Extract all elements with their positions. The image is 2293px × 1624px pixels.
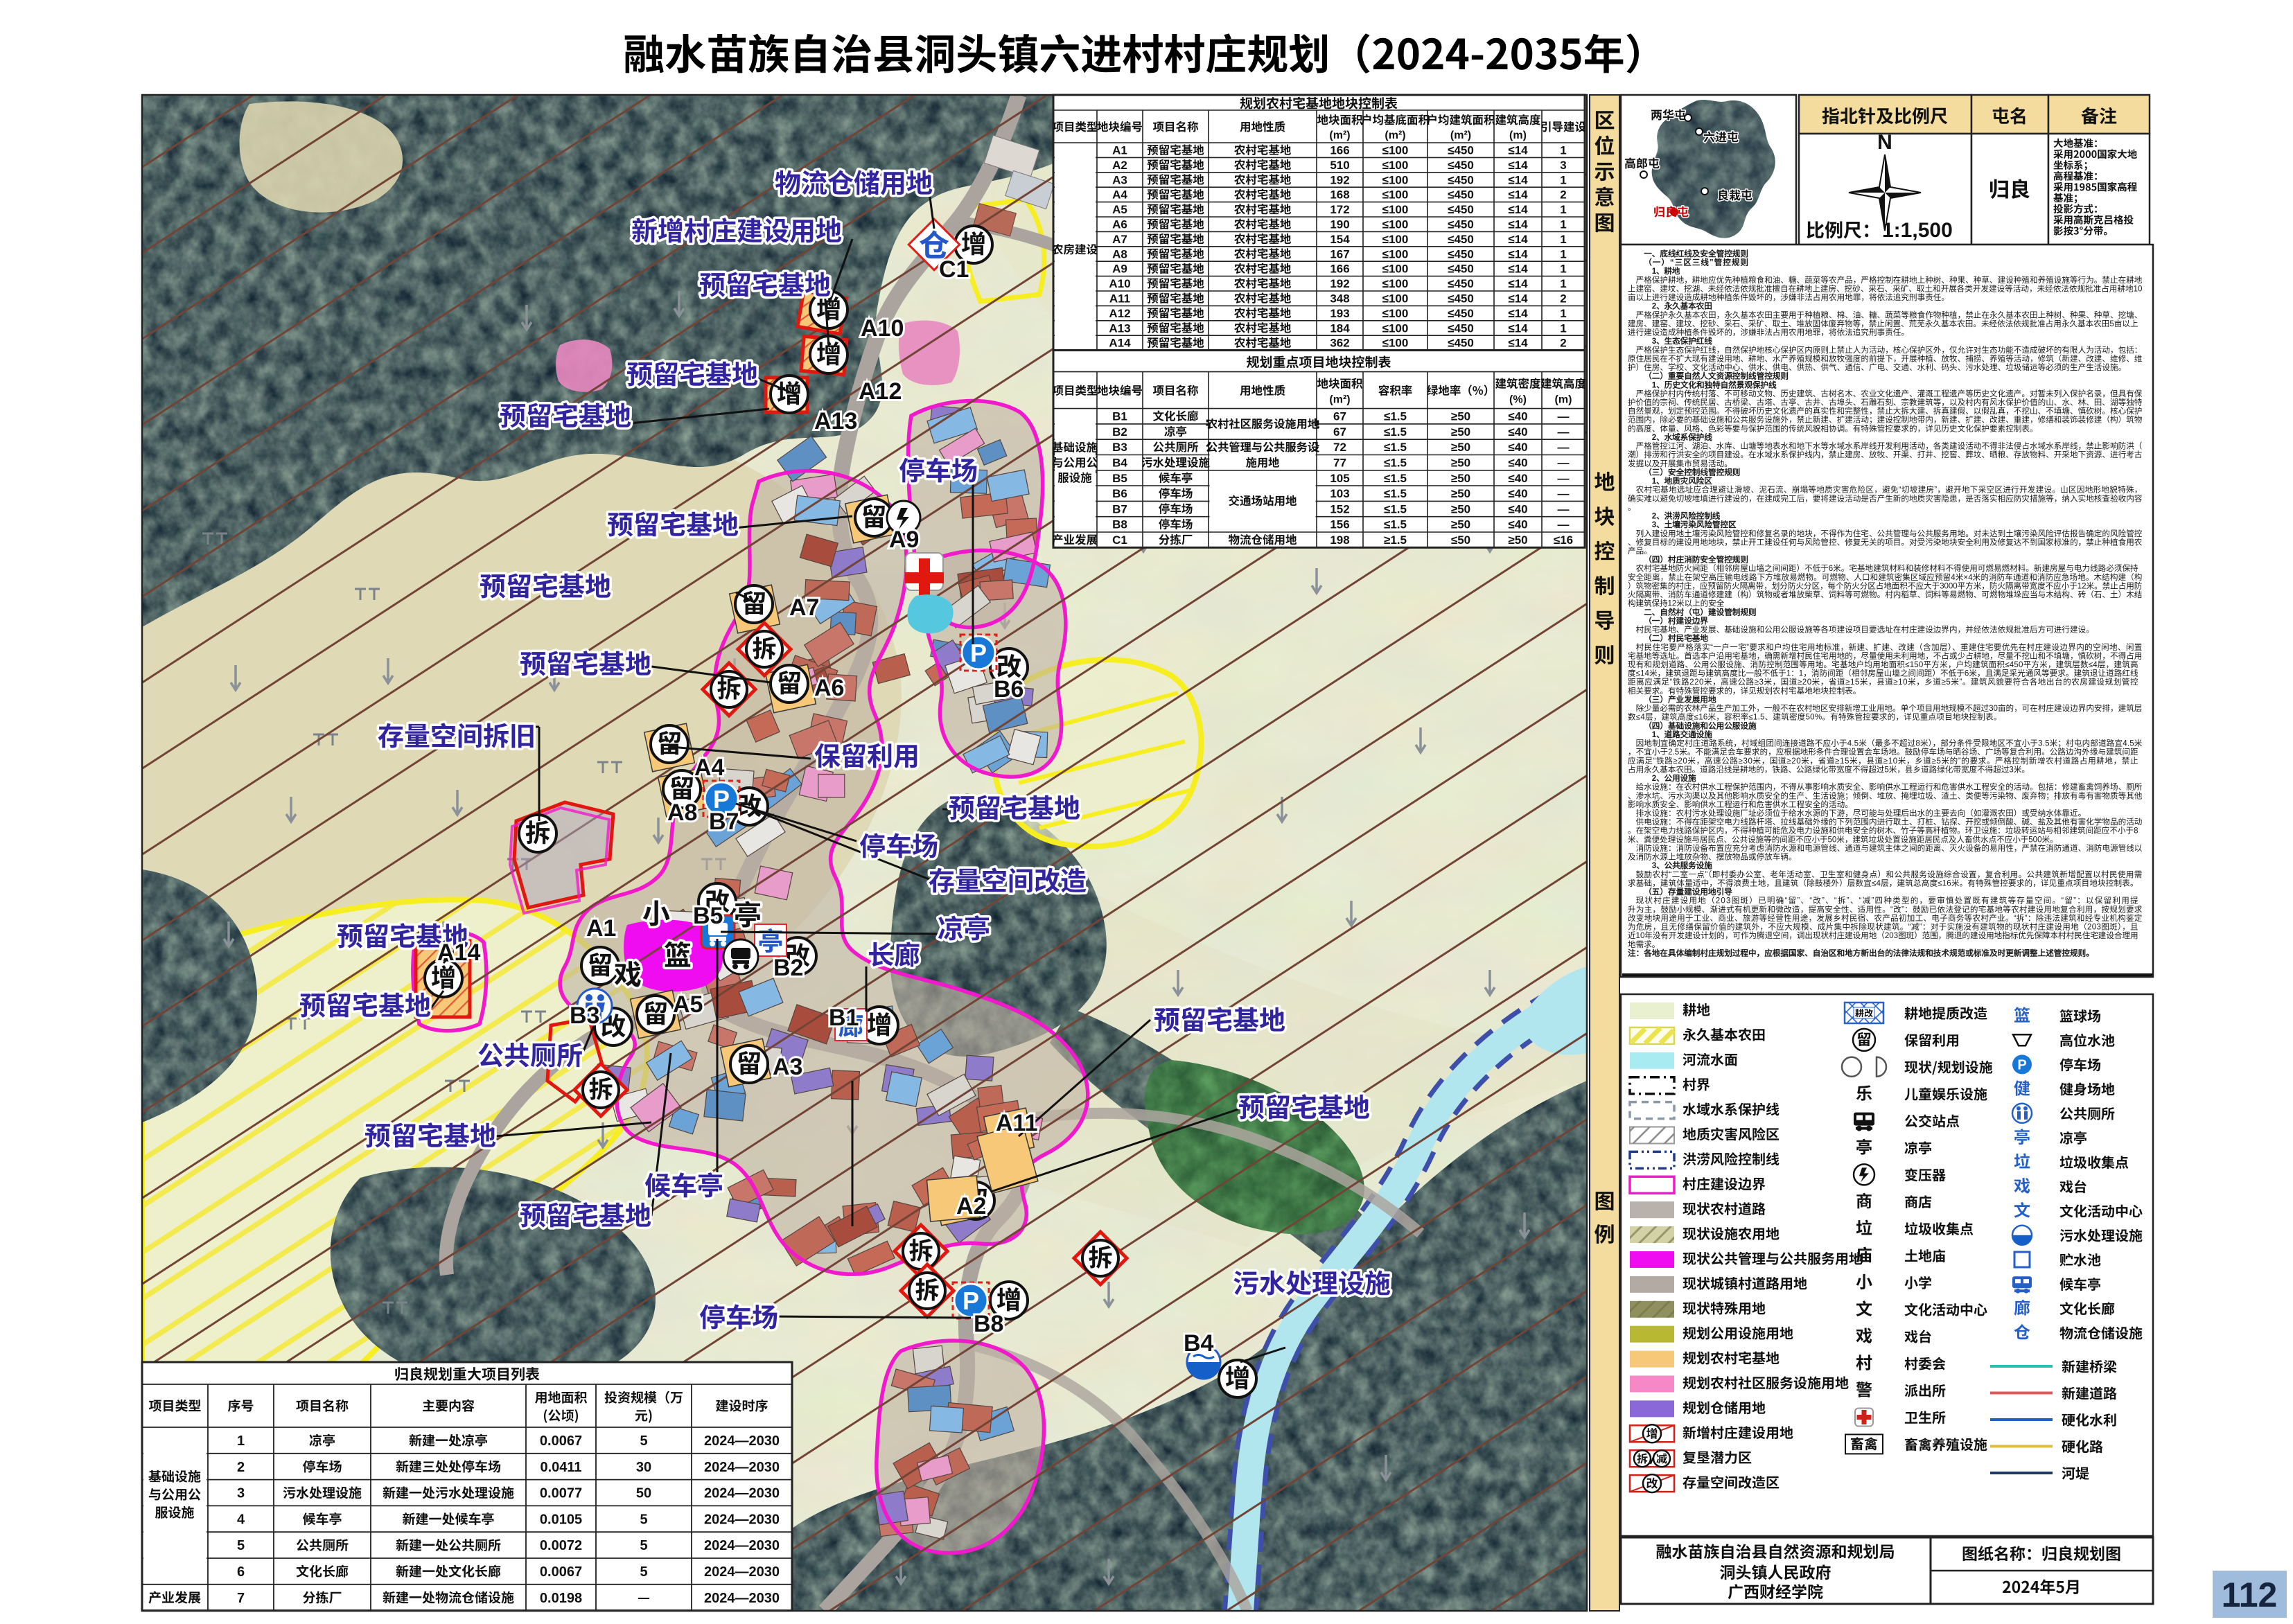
- svg-text:67: 67: [1333, 425, 1346, 439]
- svg-text:严格保护生态保护红线，自然保护地核心保护区内原则上禁止人为活: 严格保护生态保护红线，自然保护地核心保护区内原则上禁止人为活动，核心保护区外，仅…: [1636, 345, 2143, 355]
- svg-text:—: —: [1558, 441, 1570, 454]
- svg-text:现有和规划道路、公用公服设施、消防控制范围等用地。宅基地户均: 现有和规划道路、公用公服设施、消防控制范围等用地。宅基地户均用地面积≤150平方…: [1628, 660, 2138, 669]
- svg-text:≤14: ≤14: [1508, 263, 1528, 276]
- svg-text:≥50: ≥50: [1451, 487, 1470, 500]
- svg-text:A2: A2: [1112, 159, 1127, 172]
- svg-text:米、粪便处理设施与居民点、公共设施等的间距不应小于50米，建: 米、粪便处理设施与居民点、公共设施等的间距不应小于50米，建筑垃圾处置设施距居民…: [1628, 834, 2058, 844]
- svg-text:≤450: ≤450: [1448, 337, 1474, 350]
- svg-text:(m²): (m²): [1450, 130, 1471, 141]
- svg-text:A8: A8: [667, 800, 697, 826]
- svg-text:A11: A11: [1109, 292, 1130, 306]
- svg-text:A6: A6: [814, 675, 844, 701]
- svg-text:112: 112: [2222, 1576, 2278, 1614]
- svg-text:≤100: ≤100: [1382, 277, 1409, 290]
- svg-text:构建筑保持12米以上的安全: 构建筑保持12米以上的安全: [1628, 599, 1725, 608]
- svg-text:≤1.5: ≤1.5: [1384, 441, 1407, 454]
- svg-text:0.0198: 0.0198: [540, 1591, 582, 1606]
- svg-text:5: 5: [640, 1538, 647, 1553]
- svg-text:≤100: ≤100: [1382, 218, 1409, 231]
- svg-text:村民住宅要严格落实“一户一宅”要求和户均住宅用地标准，新建、: 村民住宅要严格落实“一户一宅”要求和户均住宅用地标准，新建、扩建、改建（含加层）…: [1636, 642, 2143, 652]
- svg-text:1、耕地: 1、耕地: [1652, 266, 1680, 276]
- svg-text:2024—2030: 2024—2030: [704, 1564, 780, 1580]
- svg-text:求基础，建筑体量适中，不得浪费土地，且建筑（除鼓楼外）层数宜: 求基础，建筑体量适中，不得浪费土地，且建筑（除鼓楼外）层数宜≤4层，建筑总高度≤…: [1628, 878, 2138, 888]
- svg-text:(%): (%): [1509, 394, 1527, 406]
- svg-text:0.0072: 0.0072: [540, 1538, 582, 1553]
- svg-text:B3: B3: [1112, 441, 1127, 454]
- svg-text:4: 4: [237, 1512, 245, 1527]
- svg-text:198: 198: [1330, 533, 1349, 547]
- svg-text:≤100: ≤100: [1382, 321, 1409, 335]
- svg-text:1: 1: [1560, 144, 1566, 157]
- svg-text:一、底线红线及安全管控规则: 一、底线红线及安全管控规则: [1644, 249, 1748, 258]
- svg-text:2024—2030: 2024—2030: [704, 1486, 780, 1501]
- svg-text:30: 30: [636, 1460, 651, 1475]
- svg-text:影响水质安全、影响供水工程运行和危害供水工程安全的活动。: 影响水质安全、影响供水工程运行和危害供水工程安全的活动。: [1628, 800, 1853, 809]
- svg-text:≤450: ≤450: [1448, 203, 1474, 216]
- svg-text:除少量必需的农林产品生产加工外，一般不在农村地区安排新增工业: 除少量必需的农林产品生产加工外，一般不在农村地区安排新增工业用地。单个项目用地规…: [1636, 703, 2143, 713]
- svg-text:消防设施：消防设备布置应充分考虑消防水源和电源管线、通道与建: 消防设施：消防设备布置应充分考虑消防水源和电源管线、通道与建筑主体之间的距离、灭…: [1636, 843, 2143, 853]
- svg-text:≤100: ≤100: [1382, 203, 1409, 216]
- svg-text:发掘以及开展集市贸易活动。: 发掘以及开展集市贸易活动。: [1628, 459, 1732, 468]
- svg-text:数≤4层，建筑高度≤16米，容积率≤1.5、建筑密度50%。: 数≤4层，建筑高度≤16米，容积率≤1.5、建筑密度50%。有特殊管控要求的，详…: [1628, 712, 2001, 722]
- svg-text:3: 3: [1560, 159, 1566, 172]
- svg-text:B5: B5: [693, 903, 723, 929]
- svg-text:。: 。: [1628, 503, 1636, 512]
- svg-text:≤450: ≤450: [1448, 144, 1474, 157]
- svg-text:B5: B5: [1112, 472, 1127, 485]
- svg-text:5: 5: [640, 1433, 647, 1449]
- svg-text:B4: B4: [1112, 457, 1127, 470]
- svg-text:地需求。: 地需求。: [1628, 940, 1660, 949]
- svg-text:A3: A3: [773, 1054, 802, 1080]
- svg-text:≤100: ≤100: [1382, 188, 1409, 202]
- svg-text:2024—2030: 2024—2030: [704, 1460, 780, 1475]
- svg-text:≤14: ≤14: [1508, 144, 1528, 157]
- svg-text:亩以上进行建设造成耕地种植条件毁坏的，涉嫌非法占用农用地罪，: 亩以上进行建设造成耕地种植条件毁坏的，涉嫌非法占用农用地罪，将依法追究刑事责任。: [1628, 292, 1949, 302]
- svg-text:A7: A7: [1112, 233, 1127, 246]
- svg-text:3、公共服务设施: 3、公共服务设施: [1652, 860, 1712, 870]
- svg-text:(m): (m): [1555, 394, 1572, 406]
- svg-text:72: 72: [1333, 441, 1346, 454]
- svg-text:190: 190: [1330, 218, 1349, 231]
- svg-text:≥50: ≥50: [1451, 472, 1470, 485]
- svg-text:A9: A9: [889, 527, 919, 553]
- svg-text:给水设施：在农村供水工程保护范围内，不得从事影响水质安全、影: 给水设施：在农村供水工程保护范围内，不得从事影响水质安全、影响供水工程运行和危害…: [1636, 782, 2143, 792]
- svg-text:≥50: ≥50: [1451, 518, 1470, 531]
- svg-text:2024—2030: 2024—2030: [704, 1538, 780, 1553]
- svg-text:B8: B8: [1112, 518, 1127, 531]
- svg-text:≤100: ≤100: [1382, 173, 1409, 186]
- svg-text:1、历史文化和独特自然景观保护线: 1、历史文化和独特自然景观保护线: [1652, 380, 1777, 389]
- svg-text:154: 154: [1330, 233, 1350, 246]
- svg-text:2: 2: [1560, 292, 1566, 306]
- svg-text:192: 192: [1330, 173, 1349, 186]
- svg-text:184: 184: [1330, 321, 1350, 335]
- svg-text:≤1.5: ≤1.5: [1384, 425, 1407, 439]
- svg-text:≤40: ≤40: [1508, 441, 1527, 454]
- svg-text:B7: B7: [709, 809, 739, 835]
- svg-text:1、地质灾风险区: 1、地质灾风险区: [1652, 476, 1712, 486]
- svg-text:5: 5: [237, 1538, 245, 1553]
- svg-text:≤100: ≤100: [1382, 292, 1409, 306]
- svg-text:≥50: ≥50: [1451, 441, 1470, 454]
- svg-text:A10: A10: [861, 315, 904, 342]
- svg-text:2024—2030: 2024—2030: [704, 1591, 780, 1606]
- svg-text:（一）村建设边界: （一）村建设边界: [1644, 616, 1708, 626]
- svg-text:1: 1: [1560, 218, 1566, 231]
- svg-text:A12: A12: [1109, 307, 1130, 320]
- svg-text:、修复目标的建设用地地块，禁止开工建设任何与风险管控、修复无: 、修复目标的建设用地地块，禁止开工建设任何与风险管控、修复无关的项目。对受污染地…: [1628, 537, 2143, 547]
- svg-text:B7: B7: [1112, 502, 1127, 515]
- svg-text:0.0105: 0.0105: [540, 1512, 582, 1527]
- svg-text:≤100: ≤100: [1382, 337, 1409, 350]
- svg-text:166: 166: [1330, 144, 1349, 157]
- svg-text:A14: A14: [1109, 337, 1131, 350]
- svg-text:≤450: ≤450: [1448, 277, 1474, 290]
- svg-text:—: —: [1558, 457, 1570, 470]
- svg-text:1: 1: [1560, 247, 1566, 261]
- svg-text:原住居民在不扩大现有建设用地、耕地、水产养殖规模和放牧强度的: 原住居民在不扩大现有建设用地、耕地、水产养殖规模和放牧强度的前提下，开展种植、放…: [1628, 353, 2143, 363]
- svg-text:≤14: ≤14: [1508, 188, 1528, 202]
- svg-text:A5: A5: [1112, 203, 1127, 216]
- svg-text:列入建设用地土壤污染风险管控和修复名录的地块，不得作为住宅、: 列入建设用地土壤污染风险管控和修复名录的地块，不得作为住宅、公共管理与公共服务用…: [1636, 529, 2143, 538]
- svg-text:的高度、体量、风格、色彩等要与保护范围的传统风貌相协调。有特: 的高度、体量、风格、色彩等要与保护范围的传统风貌相协调。有特殊管控要求的，详见历…: [1628, 423, 2038, 433]
- svg-text:2024—2030: 2024—2030: [704, 1433, 780, 1449]
- svg-text:≤100: ≤100: [1382, 247, 1409, 261]
- svg-text:严格管控江河、湖泊、水库、山塘等地表水和地下水等水域水系岸线: 严格管控江河、湖泊、水库、山塘等地表水和地下水等水域水系岸线开发利用活动，各类建…: [1636, 441, 2143, 451]
- svg-text:≤14: ≤14: [1508, 277, 1528, 290]
- svg-text:（四）村庄消防安全管控规则: （四）村庄消防安全管控规则: [1644, 555, 1748, 565]
- svg-text:≤16: ≤16: [1554, 533, 1573, 547]
- svg-text:≤1.5: ≤1.5: [1384, 487, 1407, 500]
- svg-text:（三）安全控制线管控规则: （三）安全控制线管控规则: [1644, 467, 1740, 477]
- svg-text:农村宅基地选址应合理避让滑坡、泥石流、崩塌等地质灾害危险区，: 农村宅基地选址应合理避让滑坡、泥石流、崩塌等地质灾害危险区，避免“切坡建房”，避…: [1636, 485, 2143, 495]
- svg-text:(m): (m): [1509, 130, 1527, 141]
- svg-text:0.0067: 0.0067: [540, 1433, 582, 1449]
- svg-text:≤1.5: ≤1.5: [1384, 457, 1407, 470]
- svg-text:1:1,500: 1:1,500: [1882, 219, 1953, 242]
- svg-text:严格保护村内传统村落、不可移动文物、历史建筑、古树名木、农业: 严格保护村内传统村落、不可移动文物、历史建筑、古树名木、农业文化遗产、灌溉工程遗…: [1636, 389, 2143, 398]
- svg-text:应满足“铁路≥20米，高速公路≥30米，国道≥20米，省道≥: 应满足“铁路≥20米，高速公路≥30米，国道≥20米，省道≥15米，县道≥10米…: [1628, 756, 2138, 766]
- svg-text:为危房，且无修缮保留价值的建筑外，不应大规模、成片集中拆除现: 为危房，且无修缮保留价值的建筑外，不应大规模、成片集中拆除现状建筑。“减”：对于…: [1628, 922, 2138, 932]
- svg-text:≤450: ≤450: [1448, 263, 1474, 276]
- svg-text:严格保护永久基本农田，永久基本农田主要用于种植粮、棉、油、糖: 严格保护永久基本农田，永久基本农田主要用于种植粮、棉、油、糖、蔬菜等粮食作物种植…: [1636, 310, 2143, 319]
- svg-text:50: 50: [636, 1486, 651, 1501]
- svg-text:A9: A9: [1112, 263, 1127, 276]
- svg-text:距离应满足“铁路220米，高速公路≥3米，国道≥20米，省道: 距离应满足“铁路220米，高速公路≥3米，国道≥20米，省道≥15米，县道≥10…: [1628, 677, 2138, 687]
- svg-text:升为主，鼓励小规模、渐进式有机更新和微改造，提高安全性、适用: 升为主，鼓励小规模、渐进式有机更新和微改造，提高安全性、适用性。“改”：鼓励已依…: [1628, 904, 2143, 914]
- svg-text:相关要求。有特殊管控要求的，详见规划农村宅基地地块控制表。: 相关要求。有特殊管控要求的，详见规划农村宅基地地块控制表。: [1628, 686, 1861, 696]
- svg-text:护价值的宗祠、传统民居、古桥梁、古塔、古亭、古井、古埠头、石: 护价值的宗祠、传统民居、古桥梁、古塔、古亭、古井、古埠头、石雕石刻、宗教建筑等，…: [1628, 398, 2143, 407]
- svg-text:≤14: ≤14: [1508, 173, 1528, 186]
- svg-text:0.0411: 0.0411: [540, 1460, 581, 1475]
- svg-text:3、生态保护红线: 3、生态保护红线: [1652, 336, 1712, 346]
- svg-text:A1: A1: [586, 915, 616, 942]
- svg-text:5: 5: [640, 1564, 647, 1580]
- svg-text:≤450: ≤450: [1448, 307, 1474, 320]
- svg-text:(m²): (m²): [1385, 130, 1405, 141]
- svg-text:现状村庄建设用地（203图斑）已明确“留”、“改”、“拆”、: 现状村庄建设用地（203图斑）已明确“留”、“改”、“拆”、“减”四种类型的，要…: [1636, 896, 2138, 906]
- svg-text:—: —: [1558, 487, 1570, 500]
- svg-text:火隔离带、消防车通道修建建（构）筑物或者堆放柴草、饲料等可燃: 火隔离带、消防车通道修建建（构）筑物或者堆放柴草、饲料等可燃物。村内稻草、饲料等…: [1628, 590, 2142, 599]
- svg-text:安全距离，禁止在架空高压输电线路下方堆放易燃物。可燃物、人口: 安全距离，禁止在架空高压输电线路下方堆放易燃物。可燃物、人口和建筑密集区域应预留…: [1628, 572, 2142, 582]
- svg-text:—: —: [1558, 410, 1570, 423]
- svg-text:≤14: ≤14: [1508, 321, 1528, 335]
- svg-text:、渗水坑、污水沟渠以及其他影响水质安全的生产、生活设施；倾倒: 、渗水坑、污水沟渠以及其他影响水质安全的生产、生活设施；倾倒、堆放、掩埋垃圾、渣…: [1628, 791, 2143, 800]
- svg-text:及消防水源上堆放杂物、摆放物品或停放车辆。: 及消防水源上堆放杂物、摆放物品或停放车辆。: [1628, 852, 1797, 862]
- svg-text:近10年没有开发建设计划的，可作为腾退空间，调出现状村庄建设: 近10年没有开发建设计划的，可作为腾退空间，调出现状村庄建设用地（203图斑）范…: [1628, 930, 2138, 940]
- svg-text:（五）存量建设用地引导: （五）存量建设用地引导: [1644, 887, 1732, 897]
- svg-text:1: 1: [1560, 321, 1566, 335]
- svg-text:鼓励农村“二室一点”（即村委办公室、老年活动室、卫生室和健身: 鼓励农村“二室一点”（即村委办公室、老年活动室、卫生室和健身点）和公共服务设施综…: [1636, 870, 2143, 879]
- svg-text:2: 2: [237, 1460, 245, 1475]
- svg-text:77: 77: [1333, 457, 1346, 470]
- svg-text:—: —: [1558, 502, 1570, 515]
- svg-text:A2: A2: [956, 1193, 986, 1219]
- svg-text:152: 152: [1330, 502, 1349, 515]
- svg-text:≤14: ≤14: [1508, 218, 1528, 231]
- svg-text:A7: A7: [789, 594, 819, 621]
- svg-text:1: 1: [1560, 203, 1566, 216]
- svg-text:A8: A8: [1112, 247, 1127, 261]
- svg-text:7: 7: [237, 1591, 245, 1606]
- svg-text:范围内，除必要的基础设施和公共服务设施外，禁止新建、扩建活动: 范围内，除必要的基础设施和公共服务设施外，禁止新建、扩建活动；建设控制地带内，新…: [1628, 415, 2143, 425]
- svg-text:193: 193: [1330, 307, 1349, 320]
- svg-text:≤450: ≤450: [1448, 233, 1474, 246]
- svg-text:≤100: ≤100: [1382, 233, 1409, 246]
- svg-text:1: 1: [1560, 263, 1566, 276]
- svg-text:建房、建窑、建坟、挖砂、采石、采矿、取土、堆放固体废弃物等，: 建房、建窑、建坟、挖砂、采石、采矿、取土、堆放固体废弃物等，禁止闲置、荒芜永久基…: [1628, 319, 2138, 328]
- svg-text:因地制宜确定村庄道路系统，村域组团间连接道路不应小于4.5米: 因地制宜确定村庄道路系统，村域组团间连接道路不应小于4.5米（最多不超过8米），…: [1636, 739, 2143, 748]
- svg-text:二、自然村（屯）建设管制规则: 二、自然村（屯）建设管制规则: [1644, 607, 1756, 617]
- svg-text:≤40: ≤40: [1508, 487, 1527, 500]
- svg-text:A4: A4: [1112, 188, 1127, 202]
- svg-text:≤1.5: ≤1.5: [1384, 518, 1407, 531]
- svg-text:村民宅基地、产业发展、基础设施和公用公服设施等各项建设项目要: 村民宅基地、产业发展、基础设施和公用公服设施等各项建设项目要选址在村庄建设边界内…: [1636, 625, 2094, 635]
- svg-text:A4: A4: [694, 754, 725, 781]
- svg-text:≥50: ≥50: [1451, 425, 1470, 439]
- svg-text:—: —: [1558, 518, 1570, 531]
- svg-text:≥50: ≥50: [1451, 410, 1470, 423]
- svg-text:2、公用设施: 2、公用设施: [1652, 773, 1696, 783]
- svg-text:0.0077: 0.0077: [540, 1486, 582, 1501]
- svg-text:2、水域系保护线: 2、水域系保护线: [1652, 432, 1712, 442]
- svg-text:A13: A13: [1109, 321, 1130, 335]
- svg-text:度≤14米，建筑退距与建筑高度比一般不低于1：1，消防间距（: 度≤14米，建筑退距与建筑高度比一般不低于1：1，消防间距（相邻房屋山墙之间间距…: [1628, 669, 2138, 678]
- svg-text:≤14: ≤14: [1508, 292, 1528, 306]
- svg-text:B8: B8: [974, 1311, 1003, 1337]
- svg-text:≤40: ≤40: [1508, 502, 1527, 515]
- svg-text:≤1.5: ≤1.5: [1384, 410, 1407, 423]
- svg-text:A13: A13: [814, 408, 857, 434]
- svg-text:N: N: [1877, 131, 1892, 154]
- svg-text:166: 166: [1330, 263, 1349, 276]
- svg-text:确实难以避免切坡堆填进行建设的，在建成完工后，要将建设活动是: 确实难以避免切坡堆填进行建设的，在建成完工后，要将建设活动是否产生新的地质灾害隐…: [1628, 493, 2143, 503]
- svg-text:农村宅基地防火间距（相邻房屋山墙之间间距）不低于6米。宅基地: 农村宅基地防火间距（相邻房屋山墙之间间距）不低于6米。宅基地建筑材料和装修材料不…: [1636, 563, 2138, 573]
- svg-text:A6: A6: [1112, 218, 1127, 231]
- svg-text:护）住房、学校、文化活动中心、供水、供电、供热、供气、通信、: 护）住房、学校、文化活动中心、供水、供电、供热、供气、通信、广电、交通、水利、码…: [1628, 362, 2126, 372]
- svg-text:。在架空电力线路保护区内，不得种植可能危及电力设施和供电安全: 。在架空电力线路保护区内，不得种植可能危及电力设施和供电安全的树木、竹子等高秆植…: [1628, 826, 2138, 836]
- svg-text:1: 1: [237, 1433, 245, 1449]
- svg-text:B4: B4: [1184, 1330, 1214, 1357]
- svg-text:≤14: ≤14: [1508, 337, 1528, 350]
- svg-text:≥50: ≥50: [1451, 457, 1470, 470]
- svg-text:67: 67: [1333, 410, 1346, 423]
- svg-text:≤50: ≤50: [1451, 533, 1470, 547]
- svg-text:≤1.5: ≤1.5: [1384, 472, 1407, 485]
- svg-text:≤100: ≤100: [1382, 144, 1409, 157]
- svg-text:B1: B1: [829, 1005, 859, 1031]
- svg-text:1: 1: [1560, 307, 1566, 320]
- svg-text:5: 5: [640, 1512, 647, 1527]
- svg-text:C1: C1: [939, 256, 969, 283]
- svg-text:供电设施：不得在距架空电力线路杆塔、拉线基础外缘的下列范围内: 供电设施：不得在距架空电力线路杆塔、拉线基础外缘的下列范围内进行取土、打桩、钻探…: [1636, 817, 2143, 827]
- svg-text:156: 156: [1330, 518, 1349, 531]
- svg-text:B6: B6: [994, 676, 1023, 703]
- svg-text:≤40: ≤40: [1508, 425, 1527, 439]
- svg-text:(m²): (m²): [1329, 394, 1350, 406]
- svg-text:2024—2030: 2024—2030: [704, 1512, 780, 1527]
- svg-text:2、永久基本农田: 2、永久基本农田: [1652, 301, 1712, 311]
- svg-text:≤14: ≤14: [1508, 233, 1528, 246]
- svg-text:P: P: [2017, 1057, 2026, 1073]
- svg-text:进行建设造成种植条件毁坏的，涉嫌非法占用农用地罪，将依法追究: 进行建设造成种植条件毁坏的，涉嫌非法占用农用地罪，将依法追究刑事责任。: [1628, 328, 1909, 337]
- svg-text:(m²): (m²): [1329, 130, 1350, 141]
- svg-text:≤40: ≤40: [1508, 410, 1527, 423]
- svg-text:348: 348: [1330, 292, 1349, 306]
- svg-text:宅基地等选址。首选本户沿用宅基地，确需新增村民住宅用地的，尽: 宅基地等选址。首选本户沿用宅基地，确需新增村民住宅用地的，尽量使用未利用地，不占…: [1628, 651, 2142, 660]
- svg-text:A5: A5: [673, 991, 703, 1018]
- svg-text:3、土壤污染风险管控区: 3、土壤污染风险管控区: [1652, 520, 1737, 529]
- svg-text:≤450: ≤450: [1448, 247, 1474, 261]
- svg-text:A11: A11: [996, 1110, 1038, 1136]
- svg-text:192: 192: [1330, 277, 1349, 290]
- svg-text:（二）村民宅基地: （二）村民宅基地: [1644, 633, 1708, 643]
- svg-text:167: 167: [1330, 247, 1349, 261]
- svg-text:≤14: ≤14: [1508, 307, 1528, 320]
- svg-text:B1: B1: [1112, 410, 1127, 423]
- svg-text:3: 3: [237, 1486, 245, 1501]
- svg-text:≤450: ≤450: [1448, 173, 1474, 186]
- svg-text:6: 6: [237, 1564, 245, 1580]
- svg-text:自然景观，划定预控范围。不得破坏历史文化遗产的真实性和完整性: 自然景观，划定预控范围。不得破坏历史文化遗产的真实性和完整性，禁止大拆大建、拆真…: [1628, 406, 2142, 416]
- svg-text:B6: B6: [1112, 487, 1127, 500]
- svg-text:1: 1: [1560, 277, 1566, 290]
- svg-text:严格保护耕地，耕地应优先种植粮食和油、糖、蔬菜等农产品，严格: 严格保护耕地，耕地应优先种植粮食和油、糖、蔬菜等农产品，严格控制在耕地上种树、种…: [1636, 275, 2143, 285]
- svg-text:105: 105: [1330, 472, 1349, 485]
- svg-text:产品。: 产品。: [1628, 546, 1652, 556]
- svg-text:362: 362: [1330, 337, 1349, 350]
- svg-text:≤40: ≤40: [1508, 457, 1527, 470]
- svg-text:≤100: ≤100: [1382, 307, 1409, 320]
- svg-text:510: 510: [1330, 159, 1349, 172]
- svg-text:—: —: [1558, 425, 1570, 439]
- svg-text:A10: A10: [1109, 277, 1130, 290]
- svg-text:—: —: [1558, 472, 1570, 485]
- svg-text:≤450: ≤450: [1448, 159, 1474, 172]
- svg-text:注：各地在具体编制村庄规划过程中，应根据国家、自治区和地方新: 注：各地在具体编制村庄规划过程中，应根据国家、自治区和地方新出台的法律法规和技术…: [1628, 948, 2094, 957]
- svg-text:≤450: ≤450: [1448, 321, 1474, 335]
- svg-text:A14: A14: [437, 939, 480, 966]
- svg-text:A12: A12: [859, 378, 902, 405]
- svg-text:168: 168: [1330, 188, 1349, 202]
- svg-text:≤450: ≤450: [1448, 188, 1474, 202]
- svg-text:103: 103: [1330, 487, 1349, 500]
- svg-text:≤100: ≤100: [1382, 263, 1409, 276]
- svg-text:≤450: ≤450: [1448, 218, 1474, 231]
- svg-text:A1: A1: [1112, 144, 1127, 157]
- svg-text:2: 2: [1560, 337, 1566, 350]
- svg-text:（三）产业发展用地: （三）产业发展用地: [1644, 695, 1716, 705]
- svg-text:≥1.5: ≥1.5: [1384, 533, 1407, 547]
- svg-text:0.0067: 0.0067: [540, 1564, 582, 1580]
- svg-text:≤40: ≤40: [1508, 518, 1527, 531]
- svg-text:172: 172: [1330, 203, 1349, 216]
- svg-text:2、洪涝风险控制线: 2、洪涝风险控制线: [1652, 511, 1721, 521]
- svg-text:B3: B3: [570, 1003, 599, 1029]
- svg-text:1: 1: [1560, 173, 1566, 186]
- svg-text:B2: B2: [1112, 425, 1127, 439]
- svg-text:上建窑、建坟、挖湖、未经依法依规批准擅自在耕地上建房、挖砂、: 上建窑、建坟、挖湖、未经依法依规批准擅自在耕地上建房、挖砂、采石、采矿、取土和开…: [1628, 284, 2142, 294]
- svg-text:≤40: ≤40: [1508, 472, 1527, 485]
- svg-text:占用永久基本农田。道路沿线是耕地的，铁路、公路绿化带宽度不得: 占用永久基本农田。道路沿线是耕地的，铁路、公路绿化带宽度不得超过5米，县乡道路绿…: [1628, 764, 2030, 774]
- svg-text:，不宜小于2.5米。不能满足会车要求的，应根据地形条件合理设: ，不宜小于2.5米。不能满足会车要求的，应根据地形条件合理设置会车场地。鼓励停车…: [1628, 747, 2138, 757]
- svg-text:排水设施：农村污水处理设施厂址必须位于给水水源的下游，尽可能: 排水设施：农村污水处理设施厂址必须位于给水水源的下游，尽可能与处理后出水的主要去…: [1636, 809, 2086, 818]
- svg-text:≤1.5: ≤1.5: [1384, 502, 1407, 515]
- svg-text:2: 2: [1560, 188, 1566, 202]
- svg-text:）筑物密集的村庄，应预留防火隔离带，划分防火分区，每个防火分: ）筑物密集的村庄，应预留防火隔离带，划分防火分区，每个防火分区占地面积不应大于3…: [1628, 581, 2143, 591]
- svg-text:≤100: ≤100: [1382, 159, 1409, 172]
- svg-text:≤14: ≤14: [1508, 203, 1528, 216]
- svg-text:A3: A3: [1112, 173, 1127, 186]
- svg-text:（四）基础设施和公用公服设施: （四）基础设施和公用公服设施: [1644, 721, 1757, 730]
- svg-text:（二）重要自然人文资源控制线管控规则: （二）重要自然人文资源控制线管控规则: [1644, 371, 1789, 381]
- svg-text:≤450: ≤450: [1448, 292, 1474, 306]
- svg-text:1、道路交通设施: 1、道路交通设施: [1652, 730, 1712, 739]
- svg-text:（一）“三区三线”管控规则: （一）“三区三线”管控规则: [1644, 258, 1748, 267]
- svg-text:≤14: ≤14: [1508, 159, 1528, 172]
- svg-text:B2: B2: [773, 955, 803, 981]
- svg-text:≥50: ≥50: [1508, 533, 1527, 547]
- svg-text:C1: C1: [1112, 533, 1127, 547]
- svg-text:改变地块用途用于工业、商业、旅游等经营性用途，发展乡村民宿、: 改变地块用途用于工业、商业、旅游等经营性用途，发展乡村民宿、农产品初加工、电子商…: [1628, 913, 2143, 923]
- svg-text:1: 1: [1560, 233, 1566, 246]
- svg-text:≥50: ≥50: [1451, 502, 1470, 515]
- svg-text:≤14: ≤14: [1508, 247, 1528, 261]
- svg-text:潮）排涝和行洪安全的项目建设。在水域水系保护线内，禁止建房、: 潮）排涝和行洪安全的项目建设。在水域水系保护线内，禁止建房、放牧、开渠、打井、挖…: [1628, 450, 2142, 459]
